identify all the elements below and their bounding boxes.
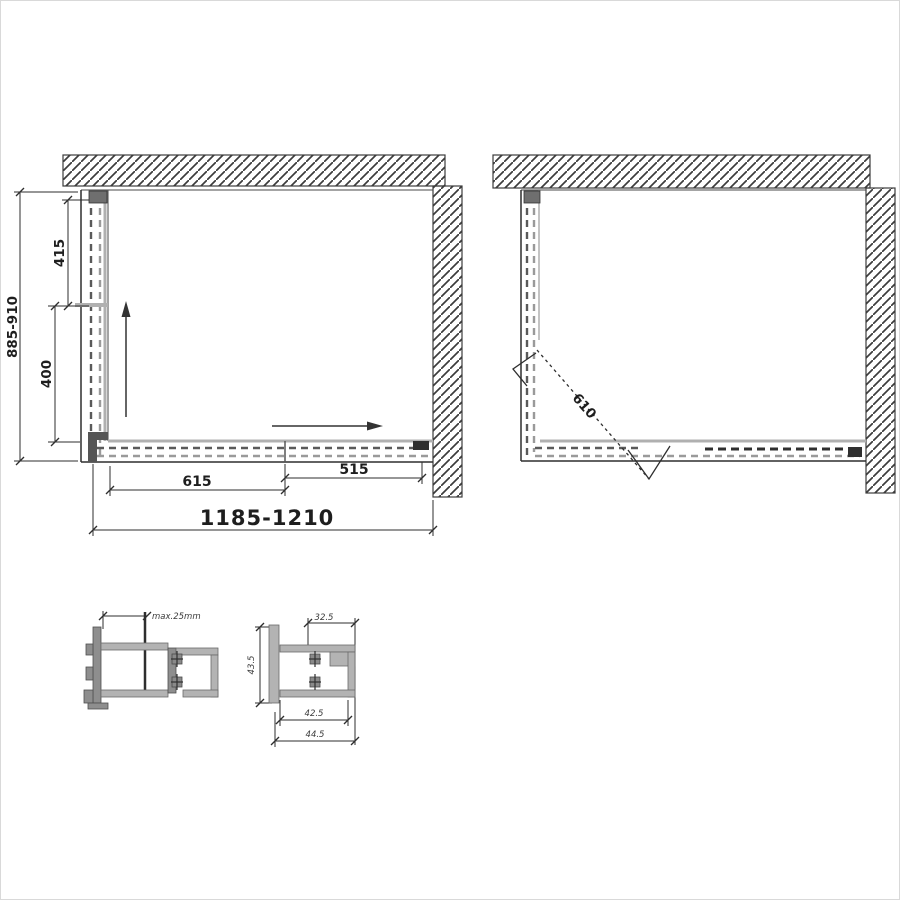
dim-label-depth-lower: 400 — [39, 360, 55, 388]
dim-width-overall: 1185-1210 — [89, 464, 437, 536]
technical-drawing-page: 885-910 415 400 615 — [0, 0, 900, 900]
dim-label-depth-overall: 885-910 — [5, 296, 21, 358]
channel-bottom-bar — [101, 690, 168, 697]
shower-enclosure-drawing: 885-910 415 400 615 — [0, 0, 900, 900]
section-wall-bar — [269, 625, 279, 703]
wall-top-right-plan — [493, 155, 870, 188]
dim-label-adjustment: max.25mm — [152, 612, 201, 622]
dim-label-top-width: 32.5 — [315, 613, 334, 623]
wall-profile-bar — [93, 627, 101, 703]
wall-right-left-plan — [433, 186, 462, 497]
dim-depth-overall: 885-910 — [5, 188, 78, 465]
plan-view-door-open: 610 — [493, 155, 895, 493]
hook-profile-bottom — [183, 690, 218, 697]
wall-profile-tab-2 — [86, 667, 93, 680]
dim-side-height: 43.5 — [247, 623, 272, 707]
wall-profile-tab-1 — [86, 644, 93, 655]
door-handle — [413, 441, 429, 450]
corner-bracket-v — [88, 432, 97, 462]
door-swing-arrow-bottom — [628, 446, 670, 479]
wall-profile-bracket-top — [89, 191, 107, 203]
dim-width-fixed: 615 — [106, 464, 289, 496]
screw-icon — [309, 651, 321, 667]
dim-adjustment: max.25mm — [99, 611, 201, 629]
dim-label-door-width: 610 — [569, 390, 600, 422]
wall-profile-foot — [88, 703, 108, 709]
dim-inner-width: 42.5 — [276, 700, 352, 726]
dim-label-inner-width: 42.5 — [305, 709, 324, 719]
wall-top-left-plan — [63, 155, 445, 186]
door-handle-open — [848, 447, 862, 457]
dim-label-depth-upper: 415 — [52, 239, 68, 267]
dim-label-side-height: 43.5 — [247, 656, 257, 675]
wall-right-right-plan — [866, 188, 895, 493]
dim-label-width-door: 515 — [339, 462, 368, 478]
wall-profile-bracket-top-open — [524, 191, 540, 203]
slide-direction-arrow-horizontal — [272, 422, 383, 431]
dim-depth-upper: 415 — [52, 196, 89, 310]
dim-door-open-diagonal: 610 — [513, 350, 670, 479]
section-bottom-bar — [280, 690, 355, 697]
detail-wall-profile-adjustment: max.25mm — [84, 611, 218, 709]
wall-profile-tab-3 — [84, 690, 93, 703]
screw-icon — [309, 674, 321, 690]
dim-width-door: 515 — [281, 462, 426, 484]
dim-label-width-overall: 1185-1210 — [200, 506, 335, 530]
slide-direction-arrow-vertical — [122, 301, 131, 417]
channel-top-bar — [101, 643, 168, 650]
plan-view-door-closed: 885-910 415 400 615 — [5, 155, 462, 536]
dim-label-width-fixed: 615 — [182, 474, 211, 490]
section-top-bar — [280, 645, 355, 652]
dim-label-outer-width: 44.5 — [306, 730, 325, 740]
door-swing-arrow-top — [513, 353, 536, 386]
detail-profile-section: 43.5 32.5 — [247, 613, 359, 747]
